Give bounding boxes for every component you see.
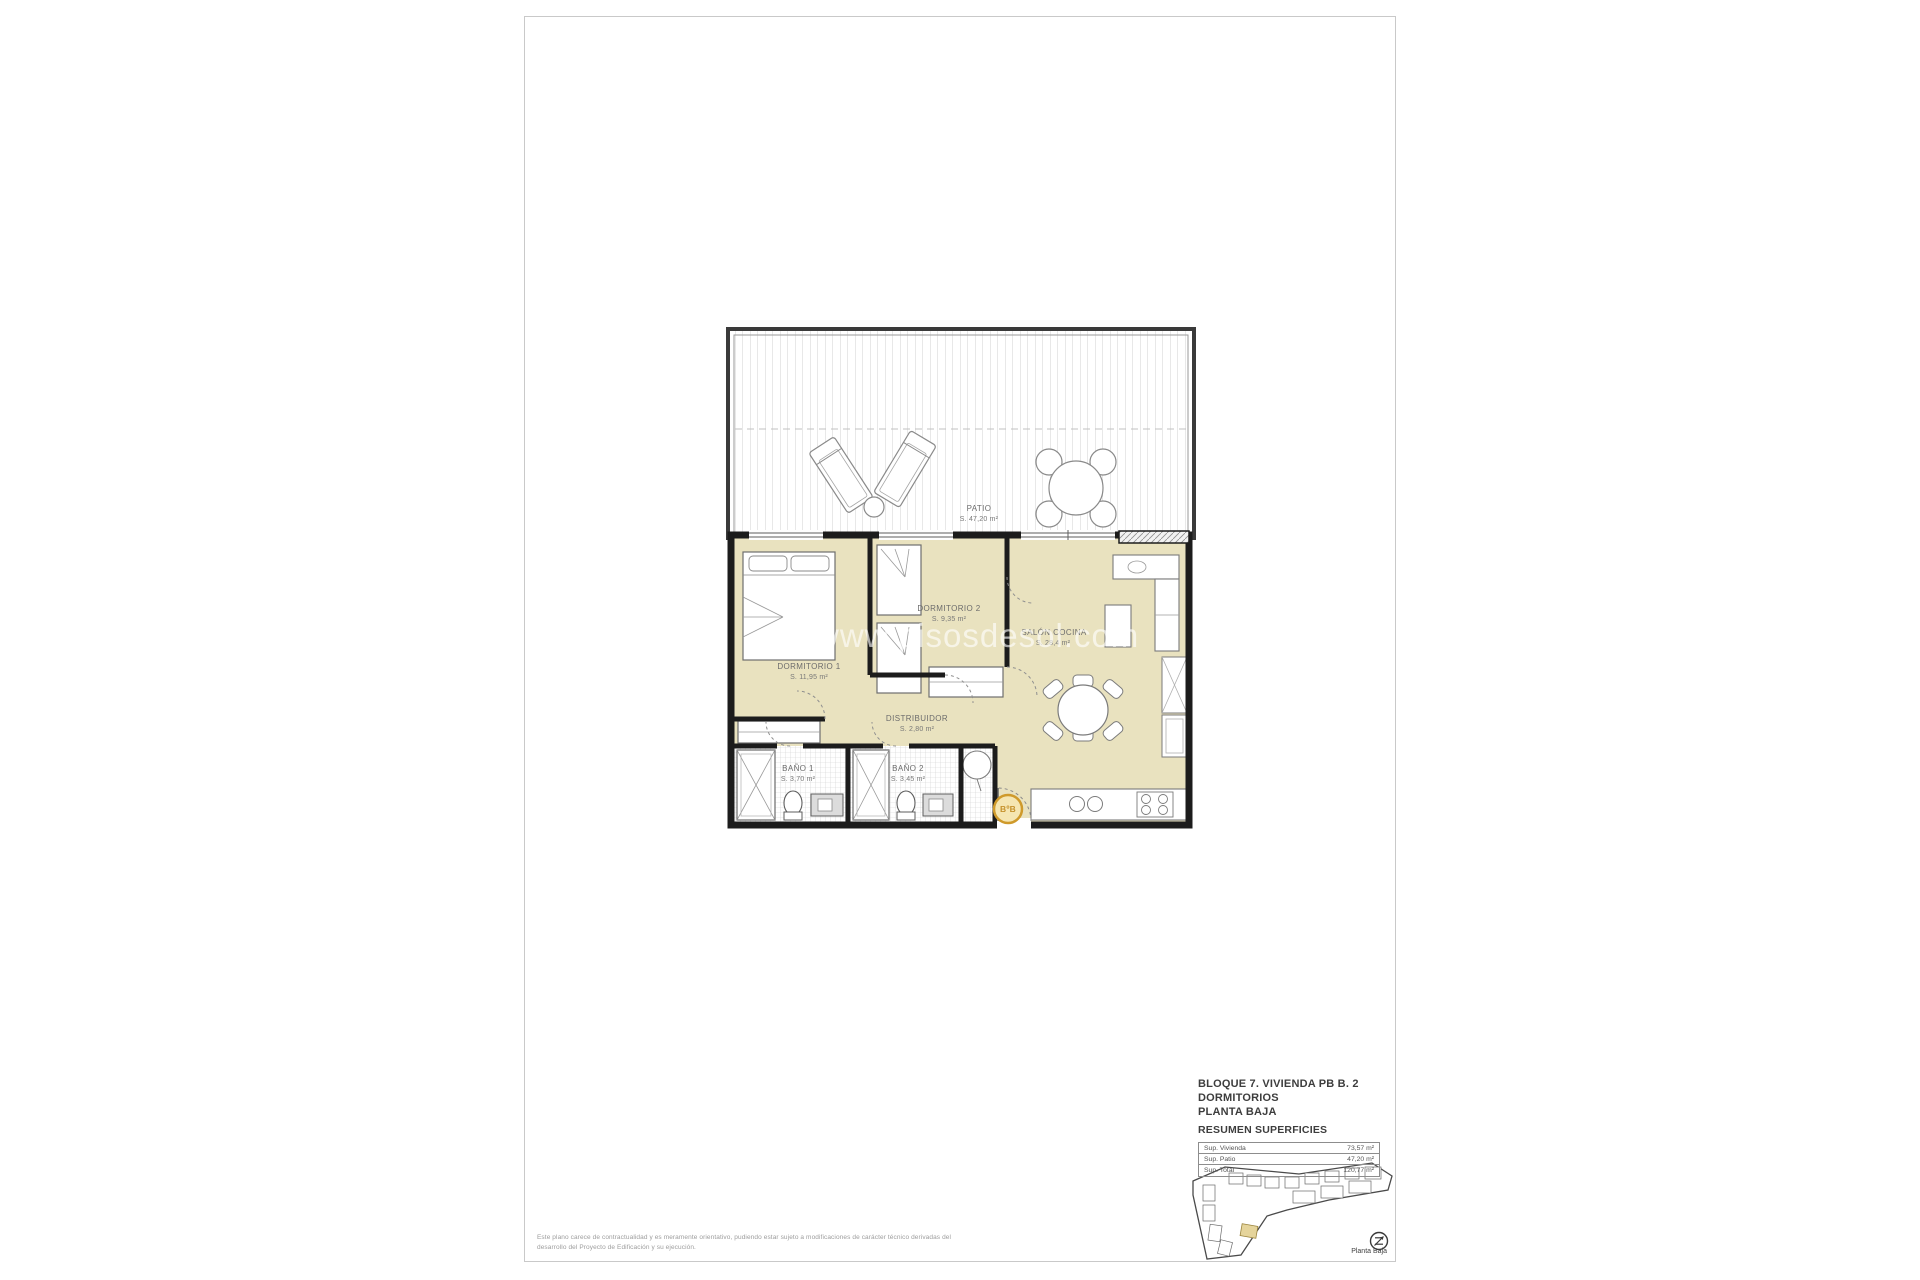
plan-sheet-page: PATIO S. 47,20 m² [524, 16, 1396, 1262]
site-plan-highlighted-unit [1240, 1224, 1258, 1239]
patio-area: PATIO S. 47,20 m² [728, 329, 1194, 538]
table-row: Sup. Vivienda 73,57 m² [1199, 1143, 1379, 1154]
svg-text:BºB: BºB [1000, 804, 1016, 814]
disclaimer-line2: desarrollo del Proyecto de Edificación y… [537, 1243, 957, 1253]
site-plan-caption: Planta Baja [1295, 1248, 1387, 1255]
salon-top-wall-hatched [1119, 531, 1189, 543]
bano1-label: BAÑO 1 [782, 764, 814, 773]
site-plan-mini [1193, 1163, 1392, 1259]
patio-area-label: S. 47,20 m² [960, 516, 999, 523]
dorm1-label: DORMITORIO 1 [777, 662, 840, 671]
disclaimer-text: Este plano carece de contractualidad y e… [537, 1233, 957, 1253]
kitchen-counter [1031, 789, 1187, 820]
table-row: Sup. Total 120,77 m² [1199, 1165, 1379, 1176]
title-block: BLOQUE 7. VIVIENDA PB B. 2 DORMITORIOS P… [1198, 1077, 1380, 1177]
bano2-area-label: S. 3,45 m² [891, 776, 926, 783]
entry-badge: BºB [994, 795, 1022, 823]
dorm2-wardrobe [929, 667, 1003, 697]
surface-summary-table: Sup. Vivienda 73,57 m² Sup. Patio 47,20 … [1198, 1142, 1380, 1177]
row-value: 47,20 m² [1347, 1156, 1374, 1163]
row-label: Sup. Patio [1204, 1156, 1235, 1163]
patio-side-table [864, 497, 884, 517]
windows-patio-wall [749, 530, 1115, 540]
plan-title-line2: PLANTA BAJA [1198, 1105, 1380, 1119]
row-label: Sup. Total [1204, 1167, 1234, 1174]
kitchen-appliance-column [1162, 657, 1187, 757]
bano1-area-label: S. 3,70 m² [781, 776, 816, 783]
apartment-interior: BºB DORMITORIO 1 S. 11,95 m² DORMITORIO … [731, 530, 1189, 830]
row-label: Sup. Vivienda [1204, 1145, 1246, 1152]
row-value: 73,57 m² [1347, 1145, 1374, 1152]
table-row: Sup. Patio 47,20 m² [1199, 1154, 1379, 1165]
disclaimer-line1: Este plano carece de contractualidad y e… [537, 1233, 957, 1243]
plan-title-line1: BLOQUE 7. VIVIENDA PB B. 2 DORMITORIOS [1198, 1077, 1380, 1105]
north-arrow-icon [1371, 1233, 1388, 1250]
row-value: 120,77 m² [1343, 1167, 1374, 1174]
dorm1-area-label: S. 11,95 m² [790, 674, 828, 681]
distribuidor-area-label: S. 2,80 m² [900, 726, 935, 733]
bano2-label: BAÑO 2 [892, 764, 924, 773]
dorm2-bed-top [877, 545, 921, 615]
plan-title-line3: RESUMEN SUPERFICIES [1198, 1124, 1380, 1137]
patio-label: PATIO [967, 504, 992, 513]
dorm2-label: DORMITORIO 2 [917, 604, 980, 613]
watermark: www.pisosdesol.com [815, 617, 1145, 655]
floor-plan-sheet-canvas: { "plan": { "watermark": "www.pisosdesol… [0, 0, 1920, 1280]
distribuidor-label: DISTRIBUIDOR [886, 714, 948, 723]
